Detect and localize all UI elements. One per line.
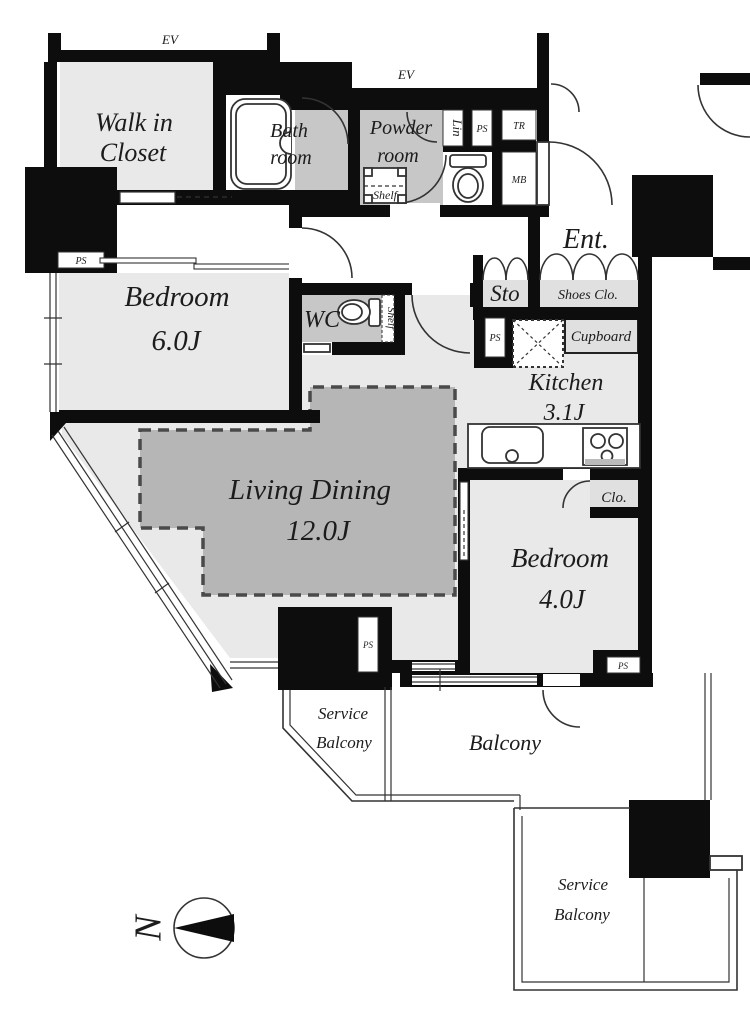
ev-label: EV xyxy=(397,67,416,82)
balcony-tab xyxy=(710,856,742,870)
neighbor-door-arc xyxy=(698,85,750,137)
stove-icon xyxy=(583,428,627,465)
entrance-door-leaf xyxy=(537,142,549,205)
balcony-label: Balcony xyxy=(469,730,541,755)
bedroom-main-door-arc xyxy=(302,228,352,278)
service-balcony-south-label: Balcony xyxy=(554,905,610,924)
floor-plan: N EV EV Walk in Closet Bath room Powder … xyxy=(0,0,750,1014)
wall xyxy=(302,205,390,217)
ps-label: PS xyxy=(362,640,373,650)
wall xyxy=(443,146,492,152)
wall xyxy=(473,255,483,307)
ps-label: PS xyxy=(74,256,86,267)
ps-label: PS xyxy=(617,661,628,671)
shelf-label: Shelf xyxy=(385,307,397,331)
shoes-closet-folding-doors xyxy=(540,254,638,280)
door-opening xyxy=(543,674,580,686)
shoes-closet-label: Shoes Clo. xyxy=(558,288,618,303)
kitchen-label: Kitchen xyxy=(528,370,604,396)
service-balcony-west-label: Service xyxy=(318,704,368,723)
sliding-door xyxy=(120,192,175,203)
window xyxy=(230,659,278,672)
wc-door-leaf xyxy=(304,344,330,352)
bedroom-main-size: 6.0J xyxy=(151,325,201,357)
wall xyxy=(213,95,226,192)
ps-label: PS xyxy=(475,124,487,135)
walk-in-closet-label: Closet xyxy=(100,138,167,167)
living-dining-size: 12.0J xyxy=(286,515,351,547)
wall xyxy=(348,95,360,205)
powder-room-label: room xyxy=(377,145,418,167)
service-balcony-west-label: Balcony xyxy=(316,733,372,752)
shelf-label: Shelf xyxy=(373,188,399,202)
service-balcony-south-label: Service xyxy=(558,875,608,894)
entrance-label: Ent. xyxy=(562,224,609,255)
wall xyxy=(458,468,652,480)
balcony-door-arc xyxy=(543,690,580,727)
window xyxy=(412,662,455,671)
wall xyxy=(50,410,320,423)
bathroom-label: room xyxy=(270,147,311,169)
wall xyxy=(713,257,750,270)
wall xyxy=(700,73,750,85)
wall xyxy=(440,205,492,217)
kitchen-size: 3.1J xyxy=(543,400,586,426)
tr-label: TR xyxy=(513,121,525,132)
wall xyxy=(48,50,280,62)
ps-label: PS xyxy=(488,333,500,344)
wall xyxy=(213,190,360,205)
structural-column xyxy=(632,175,713,257)
wall xyxy=(590,507,638,518)
grill xyxy=(585,459,625,465)
compass-north-label: N xyxy=(128,913,170,942)
wall xyxy=(492,110,502,217)
linen-label: Lin xyxy=(450,118,465,136)
wall xyxy=(492,205,549,217)
door-opening xyxy=(390,203,440,217)
powder-room-label: Powder xyxy=(369,117,432,139)
living-dining-label: Living Dining xyxy=(228,474,391,506)
storage-folding-doors xyxy=(483,258,528,280)
storage-label: Sto xyxy=(490,281,519,306)
bedroom-second-label: Bedroom xyxy=(511,543,609,573)
compass-icon: N xyxy=(128,898,234,958)
sliding-door xyxy=(194,264,290,269)
structural-column xyxy=(629,800,710,878)
bathroom-label: Bath xyxy=(270,120,308,142)
entrance-door-arc xyxy=(549,142,612,205)
ev-label: EV xyxy=(161,32,180,47)
bedroom-main-label: Bedroom xyxy=(124,281,229,313)
floor-plan-drawing: N EV EV Walk in Closet Bath room Powder … xyxy=(0,0,750,1014)
bathtub-icon xyxy=(231,99,291,189)
walk-in-closet-label: Walk in xyxy=(95,108,173,137)
door-opening xyxy=(563,469,590,480)
toilet-icon xyxy=(450,155,486,202)
wall xyxy=(213,62,352,95)
trunk-room-door-arc xyxy=(551,84,579,112)
sink-icon xyxy=(482,427,543,463)
wc-label: WC xyxy=(304,307,341,333)
door-opening xyxy=(289,228,302,278)
window xyxy=(47,273,59,412)
refrigerator-space-icon xyxy=(513,320,563,367)
toilet-icon xyxy=(338,299,380,326)
wall xyxy=(528,217,540,307)
cupboard-label: Cupboard xyxy=(571,329,632,345)
wall xyxy=(502,140,536,152)
closet-label: Clo. xyxy=(601,490,626,506)
bedroom-second-size: 4.0J xyxy=(539,584,587,614)
mb-label: MB xyxy=(511,175,526,186)
sliding-door xyxy=(100,258,196,263)
wall xyxy=(537,33,549,142)
door-opening xyxy=(412,283,470,295)
